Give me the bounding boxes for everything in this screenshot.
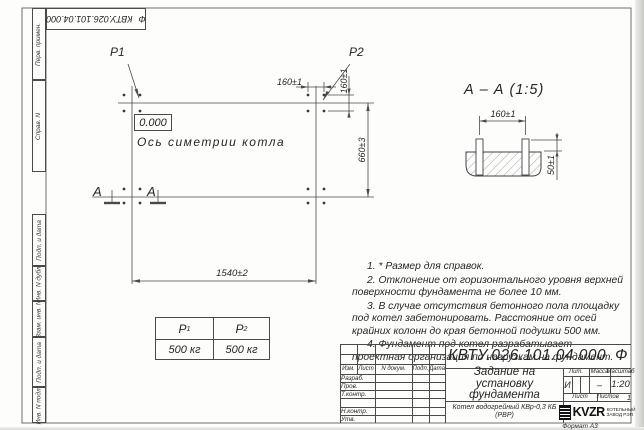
margin-box-inv-podl: Инв. N подл. xyxy=(32,387,46,423)
tb-sheet-label: Лист xyxy=(563,393,597,401)
drawing-sheet: Перв. примен. Справ. N Подп. и дата Инв.… xyxy=(0,0,644,430)
load-value-p1: 500 кг xyxy=(156,340,213,359)
tb-drawing-title: Задание на установку фундамента xyxy=(446,368,563,401)
note-1: 1. * Размер для справок. xyxy=(352,261,628,274)
tb-row-nkontr: Н.контр. xyxy=(341,407,375,415)
margin-box-vzam-inv: Взам. инв. N xyxy=(32,301,46,337)
doc-suffix: Ф xyxy=(615,347,628,365)
load-point-p2-label: P2 xyxy=(349,45,364,59)
tb-organization-cell: KVZR КОТЕЛЬНЫЙ ЗАВОД РЭП xyxy=(563,401,631,423)
doc-number-inverted: КВТУ.026.101.04.000 xyxy=(46,14,132,24)
tb-scale-value: 1:20 xyxy=(610,376,631,393)
tb-col-izm: Изм. xyxy=(340,364,357,374)
section-cut-letter-left: А xyxy=(93,184,102,199)
load-table: P1 P2 500 кг 500 кг xyxy=(155,317,270,360)
margin-box-perv-primen: Перв. примен. xyxy=(32,8,46,80)
margin-label: Взам. инв. N xyxy=(36,300,43,338)
tb-row-tkontr: Т.контр. xyxy=(341,390,375,398)
section-view-title: А – А (1:5) xyxy=(464,82,544,98)
kvzr-coil-logo-icon xyxy=(559,405,571,420)
tb-scale-label: Масштаб xyxy=(610,368,631,376)
brand-sub-line2: ЗАВОД РЭП xyxy=(607,412,636,417)
tb-product-name: Котел водогрейный КВр-0,3 КБ (РВР) xyxy=(446,401,563,423)
dim-section-bolt-spacing: 160±1 xyxy=(483,109,523,119)
margin-box-sprav-n: Справ. N xyxy=(32,80,46,172)
tb-lit-value: И xyxy=(563,376,572,393)
boiler-axis-label: Ось симетрии котла xyxy=(137,135,285,149)
margin-label: Перв. примен. xyxy=(36,22,43,65)
margin-box-podp-data-1: Подп. и дата xyxy=(32,214,46,266)
tb-col-podp: Подп. xyxy=(412,364,429,374)
margin-label: Инв. N дубл. xyxy=(36,265,43,303)
brand-subtitle: КОТЕЛЬНЫЙ ЗАВОД РЭП xyxy=(607,407,636,418)
p2-name: P xyxy=(235,322,243,336)
doc-number: КВТУ.026.101.04.000 xyxy=(448,347,606,365)
margin-box-inv-dubl: Инв. N дубл. xyxy=(32,266,46,301)
tb-col-data: Дата xyxy=(429,364,445,374)
tb-row-utv: Утв. xyxy=(341,415,375,423)
p1-sub: 1 xyxy=(187,324,191,333)
load-table-header-p2: P2 xyxy=(214,318,269,339)
tb-mass-value: – xyxy=(589,376,610,393)
tb-col-list: Лист xyxy=(357,364,375,374)
load-table-header-p1: P1 xyxy=(156,318,213,339)
brand-name: KVZR xyxy=(573,405,605,419)
margin-label: Справ. N xyxy=(36,112,43,139)
load-value-p2: 500 кг xyxy=(214,340,269,359)
note-2: 2. Отклонение от горизонтального уровня … xyxy=(352,275,628,300)
dim-foundation-length: 1540±2 xyxy=(192,268,272,279)
section-cut-letter-right: А xyxy=(147,184,156,199)
zero-level-box: 0.000 xyxy=(134,114,172,131)
tb-sheets-cell: Листов 1 xyxy=(597,393,631,401)
tb-sheets-label: Листов xyxy=(597,394,619,400)
tb-row-blank xyxy=(341,398,375,407)
tb-row-razrab: Разраб. xyxy=(341,374,375,382)
dim-bolt-spacing-x: 160±1 xyxy=(277,77,302,87)
margin-label: Подп. и дата xyxy=(36,220,43,261)
dim-foundation-width: 660±3 xyxy=(357,138,367,163)
dim-bolt-spacing-y: 160±1 xyxy=(339,69,349,94)
tb-lit-label: Лит. xyxy=(563,368,589,376)
doc-number-inverted: Ф xyxy=(139,14,146,24)
p1-name: P xyxy=(178,322,186,336)
p2-sub: 2 xyxy=(244,324,248,333)
tb-doc-number-cell: КВТУ.026.101.04.000 Ф xyxy=(446,344,630,368)
load-point-p1-label: P1 xyxy=(110,45,125,59)
note-3: 3. В случае отсутствия бетонного пола пл… xyxy=(352,301,628,339)
inverted-docnumber-stamp: Ф КВТУ.026.101.04.000 xyxy=(46,8,146,30)
tb-col-ndokum: N докум. xyxy=(375,364,412,374)
margin-box-podp-data-2: Подп. и дата xyxy=(32,337,46,387)
margin-label: Инв. N подл. xyxy=(36,386,43,424)
zero-level-value: 0.000 xyxy=(135,115,171,130)
format-label: Формат А3 xyxy=(540,423,620,430)
tb-row-prov: Пров. xyxy=(341,382,375,390)
margin-label: Подп. и дата xyxy=(36,342,43,383)
dim-bolt-protrusion: 50±1 xyxy=(546,155,556,175)
